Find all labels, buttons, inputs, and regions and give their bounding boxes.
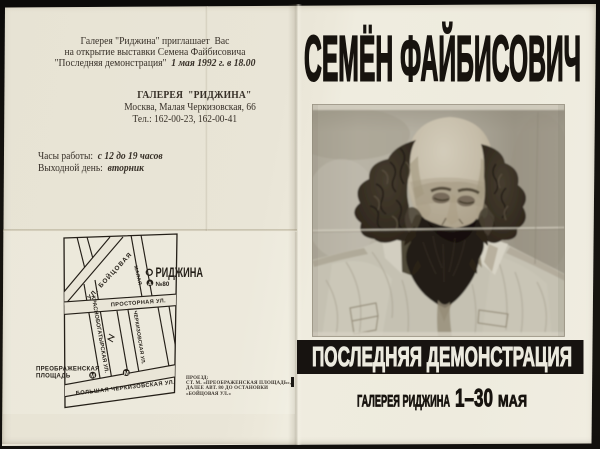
svg-text:1–30: 1–30	[455, 385, 493, 412]
svg-text:СЕМЁН ФАЙБИСОВИЧ: СЕМЁН ФАЙБИСОВИЧ	[304, 22, 581, 95]
svg-text:ГАЛЕРЕЯ РИДЖИНА: ГАЛЕРЕЯ РИДЖИНА	[357, 392, 450, 410]
svg-text:МАЯ: МАЯ	[498, 392, 527, 410]
svg-text:ПОСЛЕДНЯЯ ДЕМОНСТРАЦИЯ: ПОСЛЕДНЯЯ ДЕМОНСТРАЦИЯ	[312, 341, 572, 372]
